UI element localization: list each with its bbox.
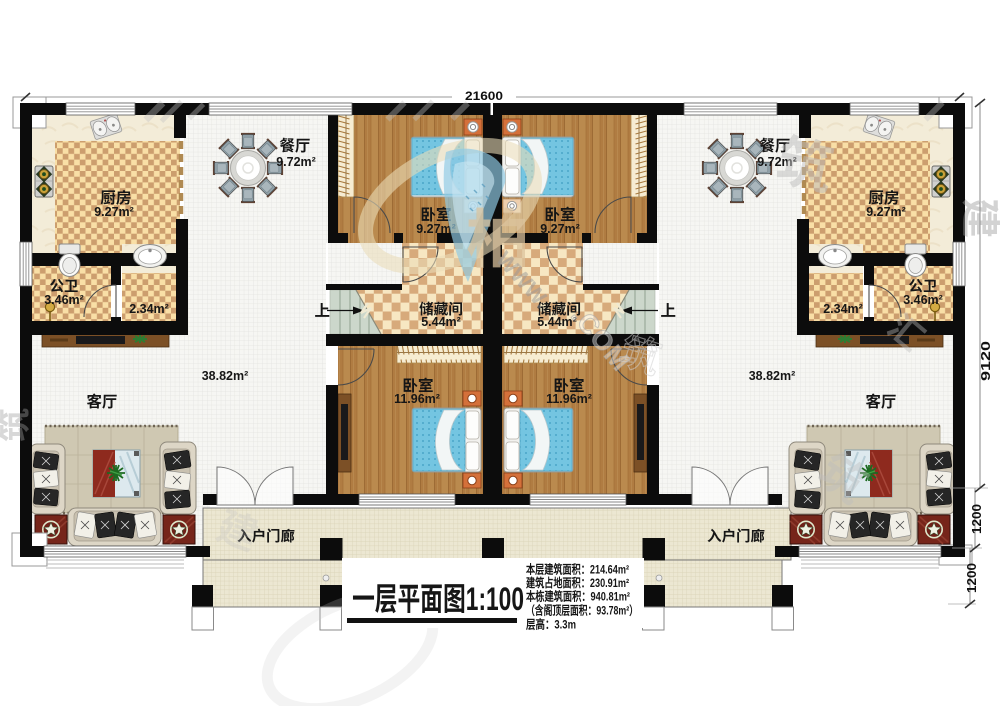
svg-text:上: 上 xyxy=(660,299,676,321)
svg-text:一层平面图1:100: 一层平面图1:100 xyxy=(352,574,524,620)
svg-text:入户门廊: 入户门廊 xyxy=(707,525,765,546)
svg-text:本栋建筑面积：940.81m²: 本栋建筑面积：940.81m² xyxy=(526,589,630,604)
svg-text:1200: 1200 xyxy=(969,504,984,534)
svg-text:建: 建 xyxy=(954,198,1000,238)
svg-text:11.96m²: 11.96m² xyxy=(546,392,592,406)
svg-text:9.27m²: 9.27m² xyxy=(866,205,906,219)
svg-text:餐厅: 餐厅 xyxy=(279,134,311,156)
svg-text:2.34m²: 2.34m² xyxy=(823,302,863,316)
svg-text:9.27m²: 9.27m² xyxy=(540,222,580,236)
svg-text:38.82m²: 38.82m² xyxy=(202,369,249,383)
svg-text:9.72m²: 9.72m² xyxy=(276,155,316,169)
svg-text:38.82m²: 38.82m² xyxy=(749,369,796,383)
svg-text:筑: 筑 xyxy=(0,408,36,442)
svg-text:客厅: 客厅 xyxy=(86,390,118,412)
svg-text:建筑占地面积：230.91m²: 建筑占地面积：230.91m² xyxy=(525,575,629,590)
svg-text:上: 上 xyxy=(314,299,330,321)
svg-text:1200: 1200 xyxy=(964,563,979,593)
svg-text:11.96m²: 11.96m² xyxy=(394,392,440,406)
svg-text:5.44m²: 5.44m² xyxy=(421,315,461,329)
svg-text:本层建筑面积：214.64m²: 本层建筑面积：214.64m² xyxy=(526,562,629,577)
svg-text:9.27m²: 9.27m² xyxy=(94,205,134,219)
svg-text:3.46m²: 3.46m² xyxy=(44,293,84,307)
svg-text:层高：3.3m: 层高：3.3m xyxy=(526,617,576,632)
svg-text:2.34m²: 2.34m² xyxy=(129,302,169,316)
svg-text:客厅: 客厅 xyxy=(865,390,897,412)
svg-text:9120: 9120 xyxy=(978,341,993,381)
svg-text:（含阁顶层面积：93.78m²）: （含阁顶层面积：93.78m²） xyxy=(526,603,638,618)
svg-text:21600: 21600 xyxy=(465,89,503,103)
